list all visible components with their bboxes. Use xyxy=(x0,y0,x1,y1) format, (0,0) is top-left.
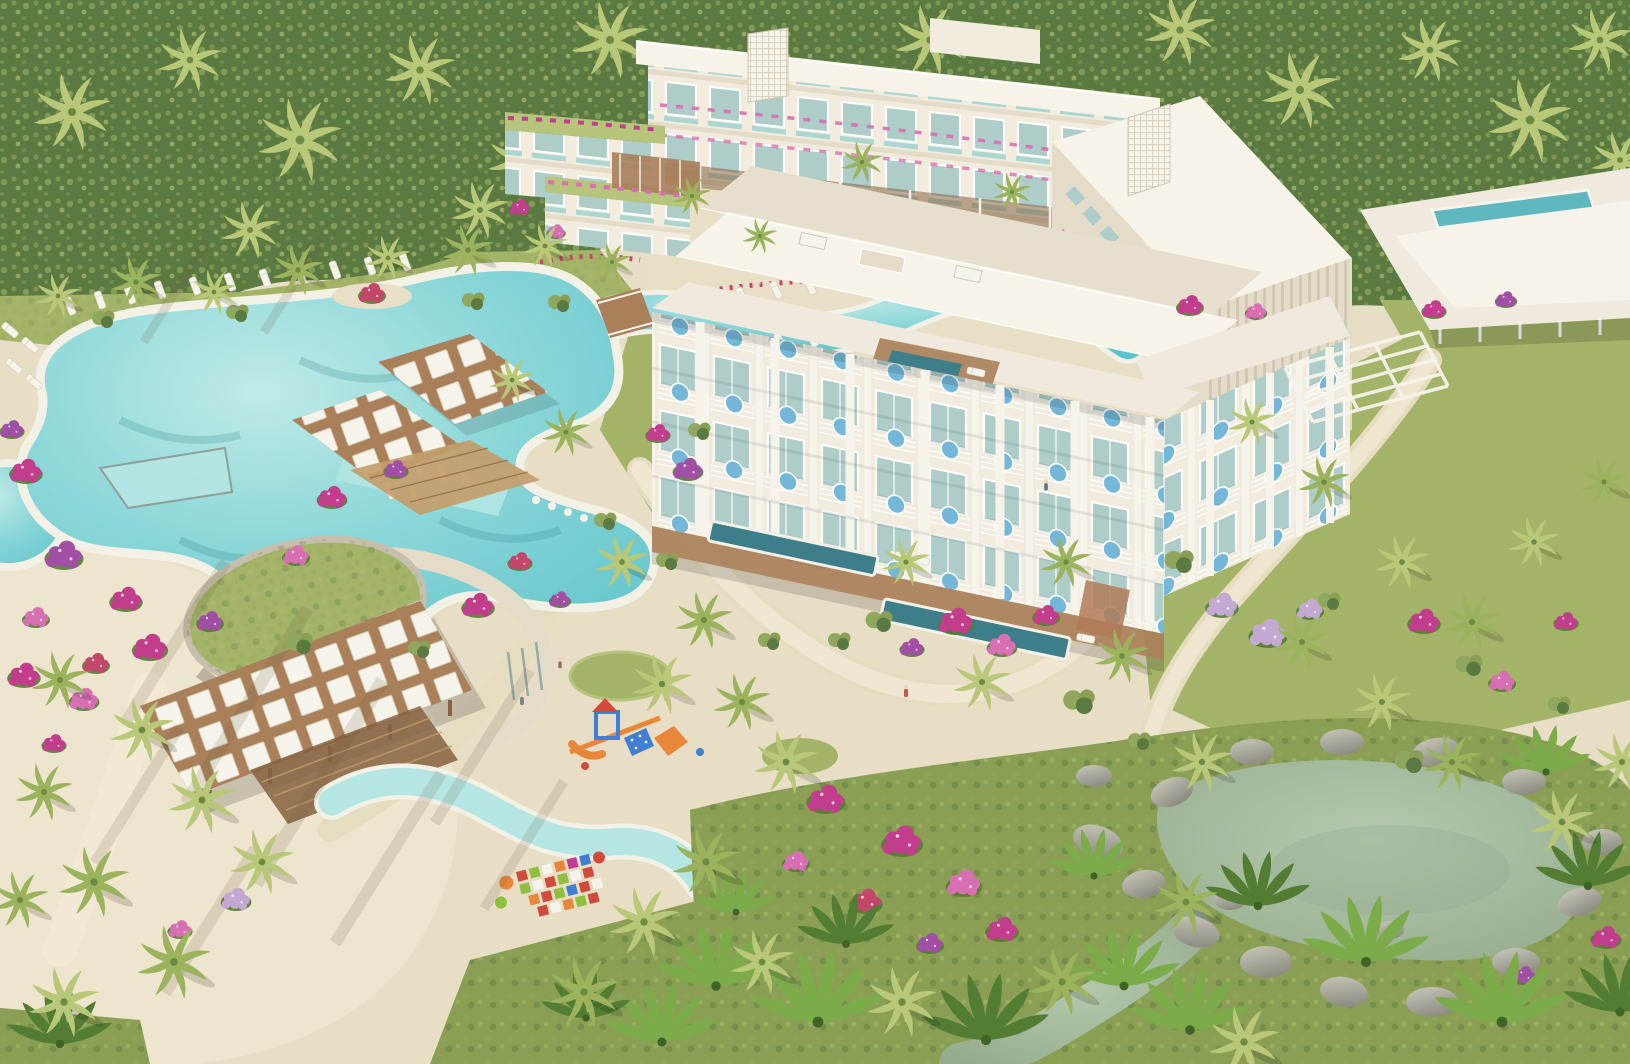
rock xyxy=(1076,765,1112,787)
spring-toy xyxy=(581,762,589,770)
rock xyxy=(1230,739,1274,765)
person xyxy=(904,685,909,697)
person xyxy=(520,693,525,705)
pond-depth xyxy=(1270,825,1510,915)
lattice-elevator-tower xyxy=(1128,104,1170,196)
resort-rendering-stage: Aerial rendering of a tropical beach res… xyxy=(0,0,1630,1064)
person xyxy=(558,658,562,669)
rock xyxy=(1502,769,1546,795)
person xyxy=(1044,479,1048,490)
rock xyxy=(1320,729,1364,755)
rock xyxy=(1240,946,1292,978)
spring-toy xyxy=(696,748,704,756)
resort-aerial-rendering: Aerial rendering of a tropical beach res… xyxy=(0,0,1630,1064)
lattice-tower xyxy=(748,28,788,102)
